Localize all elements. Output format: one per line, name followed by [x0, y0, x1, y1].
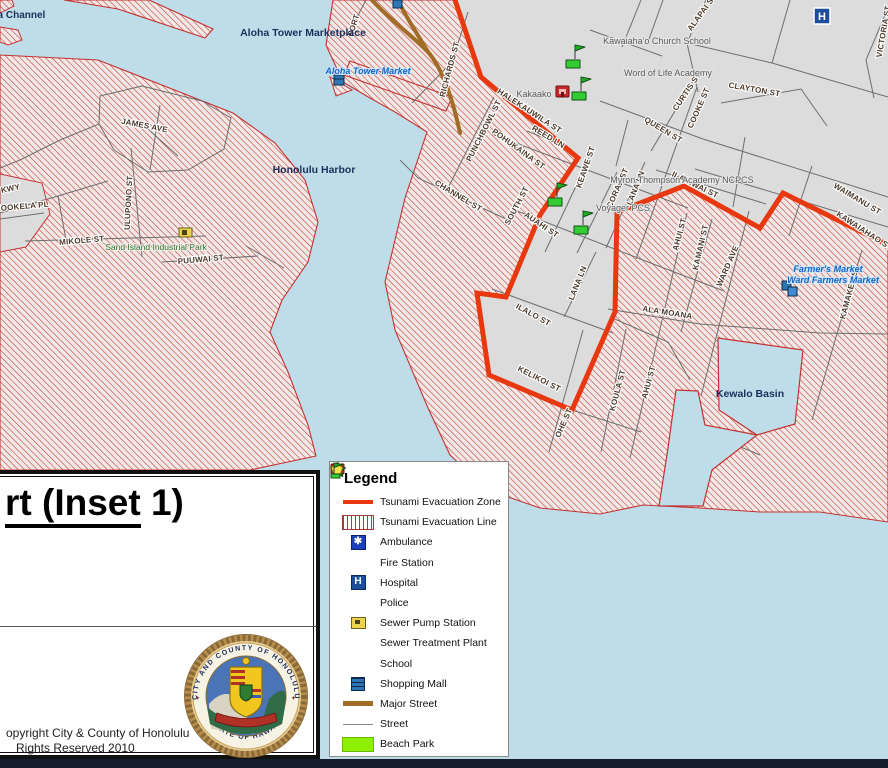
legend-item-shopping-mall: Shopping Mall	[330, 674, 508, 694]
map-bottom-border	[0, 759, 888, 768]
fire-station-icon	[556, 86, 569, 97]
evac-line-swatch	[340, 515, 376, 530]
school-name-label: Myron Thompson Academy NCPCS	[610, 175, 753, 185]
seal-star-left: ✦	[195, 695, 200, 702]
legend-item-police: Police	[330, 593, 508, 613]
beach-park-swatch	[340, 737, 376, 752]
legend-item-fire-station: Fire Station	[330, 553, 508, 573]
legend-panel: Legend Tsunami Evacuation Zone Tsunami E…	[329, 461, 509, 757]
sewer-pump-icon	[340, 617, 376, 629]
shopping-mall-icon	[340, 677, 376, 691]
major-street-swatch	[340, 701, 376, 706]
legend-item-school: School	[330, 654, 508, 674]
hospital-icon: H	[340, 575, 376, 590]
legend-item-sewer-treatment: Sewer Treatment Plant	[330, 633, 508, 653]
aloha-tower-marketplace-label: Aloha Tower Marketplace	[240, 27, 366, 39]
evac-zone-swatch	[340, 500, 376, 504]
school-name-label: Voyager PCS	[596, 203, 650, 213]
seal-star-right: ✦	[291, 695, 296, 702]
street-swatch	[340, 724, 376, 725]
channel-label: ma Channel	[0, 10, 46, 21]
legend-item-street: Street	[330, 714, 508, 734]
school-name-label: Kawaiaha'o Church School	[603, 36, 711, 46]
mall-name-label: Ward Farmers Market	[787, 275, 880, 285]
ambulance-icon: ✱	[340, 535, 376, 550]
map-title: rt (Inset 1)	[5, 482, 184, 524]
hospital-icon: H	[814, 8, 830, 24]
kakaako-label: Kakaako	[516, 89, 551, 99]
mall-name-label: Farmer's Market	[793, 264, 863, 274]
school-name-label: Word of Life Academy	[624, 68, 712, 78]
legend-item-major-street: Major Street	[330, 694, 508, 714]
legend-item-hospital: H Hospital	[330, 573, 508, 593]
sewer-pump-station-icon	[179, 228, 192, 237]
map-title-block: rt (Inset 1) opyright City & County of H…	[0, 470, 320, 759]
legend-item-ambulance: ✱ Ambulance	[330, 532, 508, 552]
mall-name-label: Aloha Tower Market	[324, 66, 411, 76]
kewalo-basin-label: Kewalo Basin	[716, 388, 784, 400]
industrial-park-label: Sand Island Industrial Park	[105, 242, 207, 252]
legend-item-beach-park: Beach Park	[330, 734, 508, 754]
title-divider	[0, 626, 316, 627]
copyright-line2: Rights Reserved 2010	[16, 741, 135, 755]
legend-item-evac-line: Tsunami Evacuation Line	[330, 512, 508, 532]
copyright-line1: opyright City & County of Honolulu	[6, 726, 189, 740]
honolulu-harbor-label: Honolulu Harbor	[273, 164, 356, 176]
legend-item-evac-zone: Tsunami Evacuation Zone	[330, 492, 508, 512]
legend-item-sewer-pump: Sewer Pump Station	[330, 613, 508, 633]
tsunami-evacuation-map: H FORT RICHARDS ST ALAPAI ST VICTORIA ST…	[0, 0, 888, 768]
svg-text:H: H	[818, 11, 826, 23]
legend-title: Legend	[344, 470, 508, 487]
